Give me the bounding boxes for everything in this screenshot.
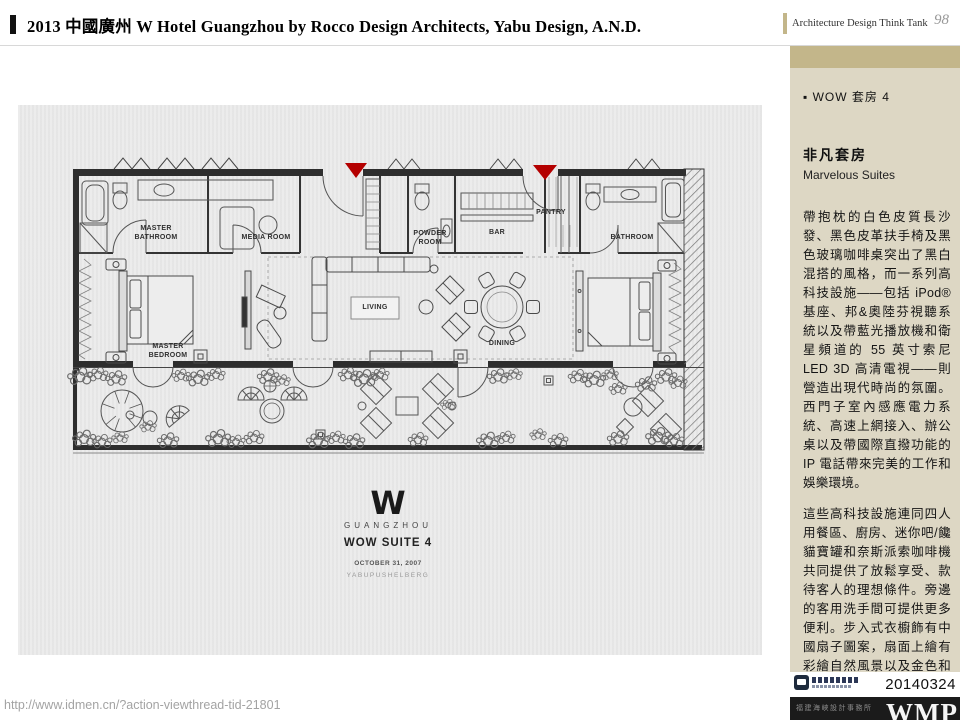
plan-date: OCTOBER 31, 2007 [308,560,468,567]
room-label-dining: DINING [489,339,515,348]
room-label-master-bedroom: MASTER BEDROOM [149,342,188,360]
room-label-bar: BAR [489,228,505,237]
plan-city: GUANGZHOU [308,521,468,530]
room-label-media-room: MEDIA ROOM [241,233,290,242]
sidebar-heading-zh: 非凡套房 [803,145,951,165]
sidebar-footer-strip: 20140324 [790,672,960,697]
curtain-wall [684,169,704,450]
sponsor-logo [794,675,858,690]
sidebar: ▪ WOW 套房 4 非凡套房 Marvelous Suites 帶抱枕的白色皮… [790,46,960,720]
plan-designer-credit: YABUPUSHELBERG [308,572,468,579]
sponsor-logo-icon [794,675,809,690]
w-hotel-logo: W [308,488,468,518]
brand-accent-tick [783,13,787,34]
brand-label: Architecture Design Think Tank [792,18,928,29]
header-accent-bar [10,15,16,34]
terrace-planting [68,367,687,448]
furniture [106,257,676,364]
page-title: 2013 中國廣州 W Hotel Guangzhou by Rocco Des… [27,13,641,37]
source-url-link[interactable]: http://www.idmen.cn/?action-viewthread-t… [4,698,281,712]
wmp-wordmark: WMP [886,700,958,720]
sidebar-paragraph-2: 這些高科技設施連同四人用餐區、廚房、迷你吧/饞貓寶罐和奈斯派索咖啡機共同提供了放… [803,505,951,695]
room-label-powder-room: POWDER ROOM [413,229,446,247]
room-label-master-bathroom: MASTER BATHROOM [134,224,177,242]
room-label-bathroom: BATHROOM [610,233,653,242]
sidebar-body: ▪ WOW 套房 4 非凡套房 Marvelous Suites 帶抱枕的白色皮… [790,68,960,672]
room-label-living: LIVING [362,303,387,312]
studio-name: 福建海峽設計事務所 [796,703,873,713]
sidebar-accent-band [790,46,960,68]
room-label-pantry: PANTRY [536,208,566,217]
plan-suite-name: WOW SUITE 4 [308,537,468,549]
closet-doors [114,158,660,169]
plan-title-block: W GUANGZHOU WOW SUITE 4 OCTOBER 31, 2007… [308,488,468,579]
sidebar-bullet-item: ▪ WOW 套房 4 [803,88,951,105]
sidebar-bottom-bar: 福建海峽設計事務所 WMP [790,697,960,720]
date-stamp: 20140324 [885,676,956,693]
entry-marker-icon [533,165,557,180]
slide-page: 2013 中國廣州 W Hotel Guangzhou by Rocco Des… [0,0,960,720]
sponsor-logo-text [812,677,858,688]
page-number: 98 [934,12,949,29]
sidebar-paragraph-1: 帶抱枕的白色皮質長沙發、黑色皮革扶手椅及黑色玻璃咖啡桌突出了黑白混搭的風格，而一… [803,208,951,493]
floor-plan-panel: MASTER BATHROOM MEDIA ROOM POWDER ROOM B… [18,105,762,655]
sidebar-heading-en: Marvelous Suites [803,168,951,182]
